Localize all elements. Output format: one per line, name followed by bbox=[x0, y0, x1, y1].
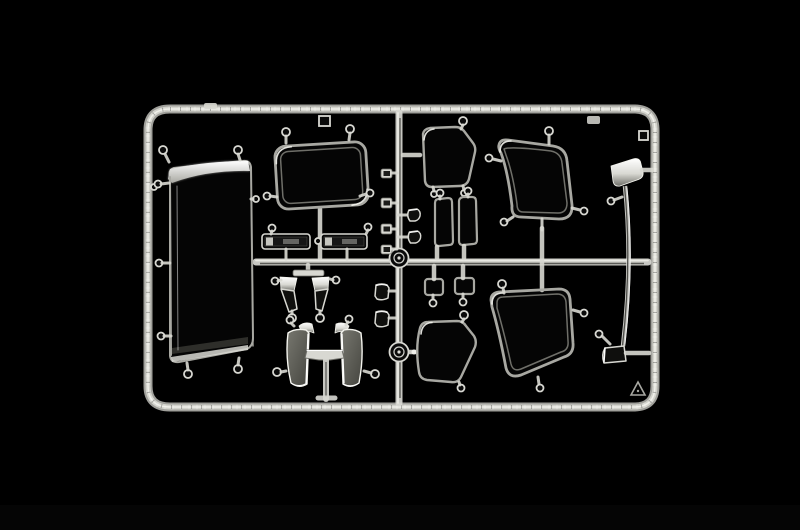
injection-hub-lower bbox=[390, 343, 409, 362]
frame-right-nub bbox=[639, 131, 648, 140]
frame-top-tab-right bbox=[587, 116, 600, 124]
roof-deflector bbox=[155, 146, 260, 378]
frame-hanging-tab bbox=[319, 116, 330, 126]
sprue-photo bbox=[0, 0, 800, 530]
floor-reflection bbox=[0, 505, 800, 530]
photo-canvas bbox=[0, 0, 800, 530]
frame-top-tab bbox=[204, 103, 217, 109]
